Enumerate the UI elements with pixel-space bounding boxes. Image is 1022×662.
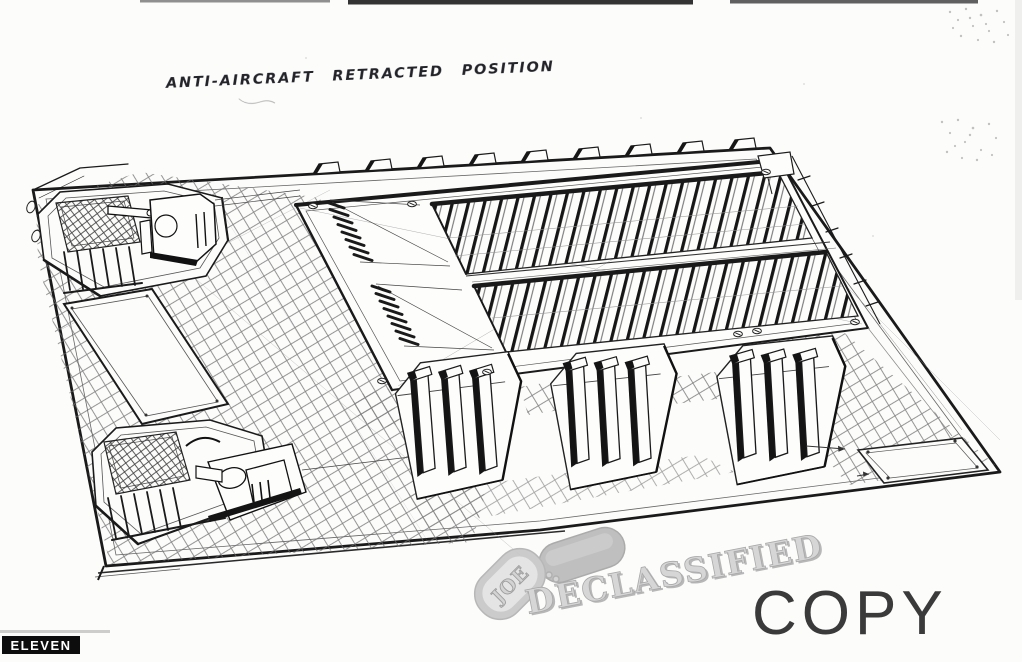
anti-aircraft-panel-sketch: JOE DECLASSIFIED DECLASSIFIED COPY ELEVE… xyxy=(0,0,1022,662)
scan-edge-shadow xyxy=(1015,0,1022,300)
badge-rule xyxy=(0,630,110,633)
scanned-concept-sketch-page: JOE DECLASSIFIED DECLASSIFIED COPY ELEVE… xyxy=(0,0,1022,662)
copy-stamp: COPY xyxy=(752,579,948,648)
hatch-cover-crosshatched xyxy=(56,196,140,252)
page-number-text: ELEVEN xyxy=(10,638,71,653)
